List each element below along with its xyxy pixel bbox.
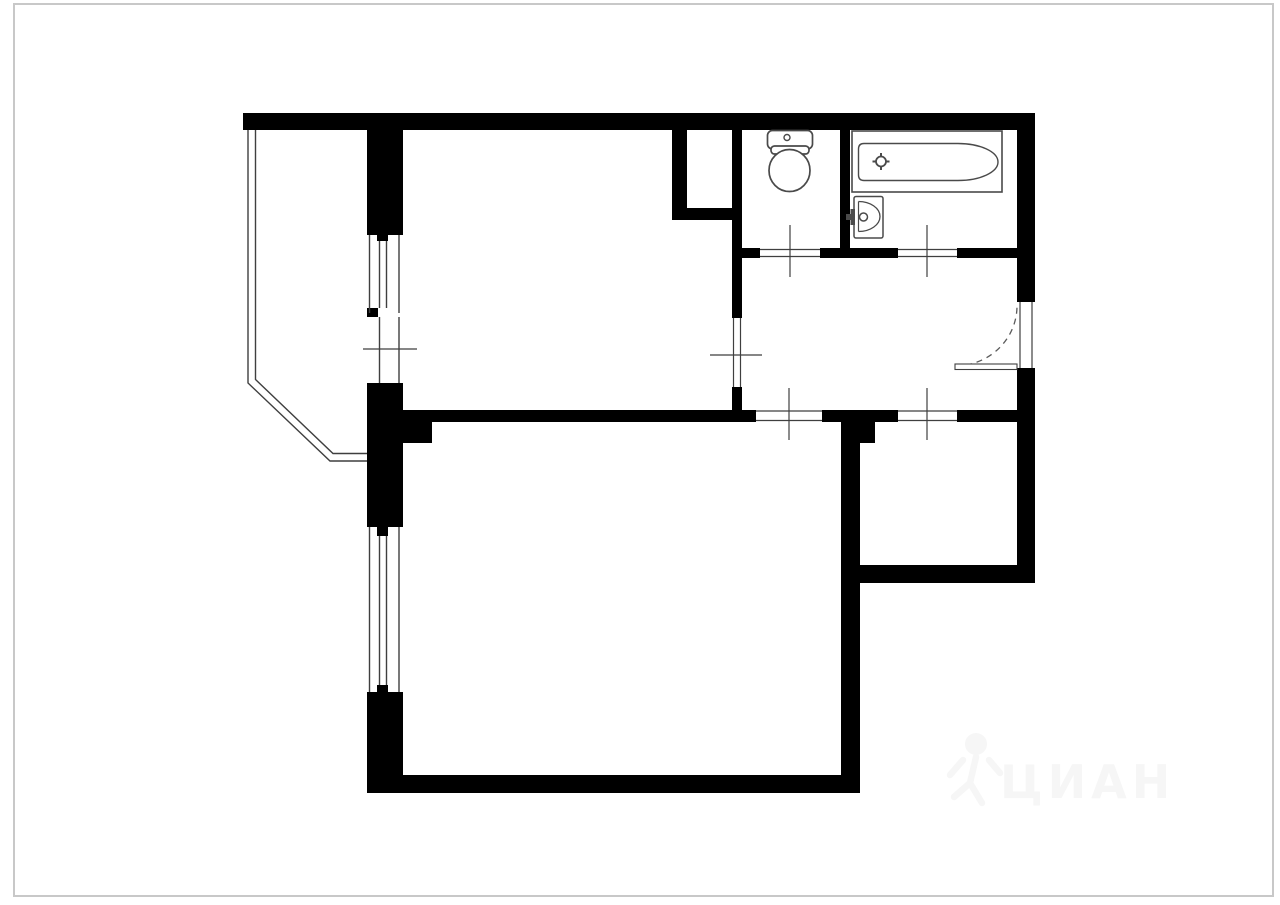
watermark-text: ЦИАН [1000, 755, 1175, 809]
openings-layer [363, 225, 1032, 440]
sink-icon [846, 197, 883, 239]
entry-door [955, 306, 1017, 370]
balcony [248, 130, 367, 461]
watermark: ЦИАН [950, 733, 1175, 809]
toilet-icon [768, 131, 813, 192]
bathtub-icon [852, 131, 1002, 192]
watermark-figure [950, 733, 1000, 803]
floor-plan-image: ЦИАН [0, 0, 1280, 905]
